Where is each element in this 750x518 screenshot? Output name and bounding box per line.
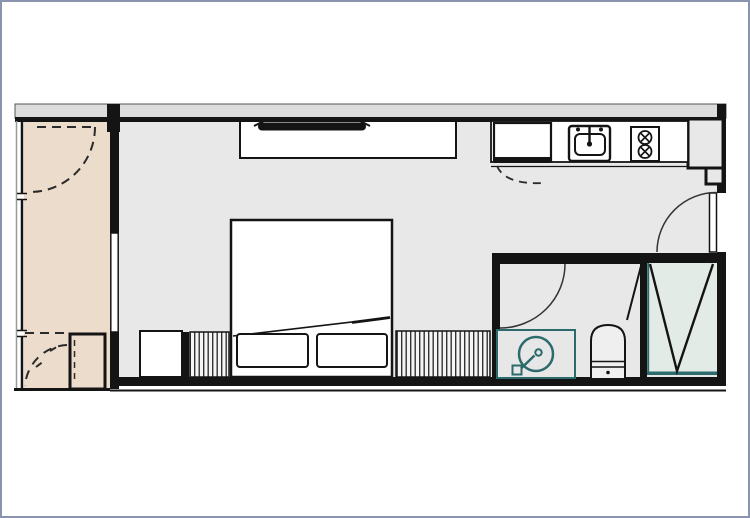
pillow-left [237, 334, 308, 367]
floor-plan-svg [2, 2, 748, 516]
wall-niche [688, 119, 723, 168]
tv [258, 123, 366, 131]
cabinet [140, 331, 182, 377]
bed [231, 220, 392, 377]
kitchen-sink [569, 126, 610, 161]
shower-enclosure [627, 262, 717, 378]
stove-2-burner [631, 127, 659, 161]
bathroom-vanity [497, 330, 575, 378]
wardrobe-left [190, 332, 229, 377]
furniture-divider [183, 332, 189, 377]
entry-door-leaf [710, 193, 717, 252]
balcony-glass-door [111, 233, 118, 332]
balcony-partition-wall [110, 121, 119, 389]
door-jamb-block [706, 168, 723, 184]
wardrobe-right [396, 331, 490, 377]
toilet [591, 325, 625, 379]
tv-console [240, 121, 456, 158]
floor-plan-image [0, 0, 750, 518]
bathroom-top-wall [492, 253, 726, 264]
shower-partition-wall [640, 262, 647, 378]
pillow-right [317, 334, 387, 367]
